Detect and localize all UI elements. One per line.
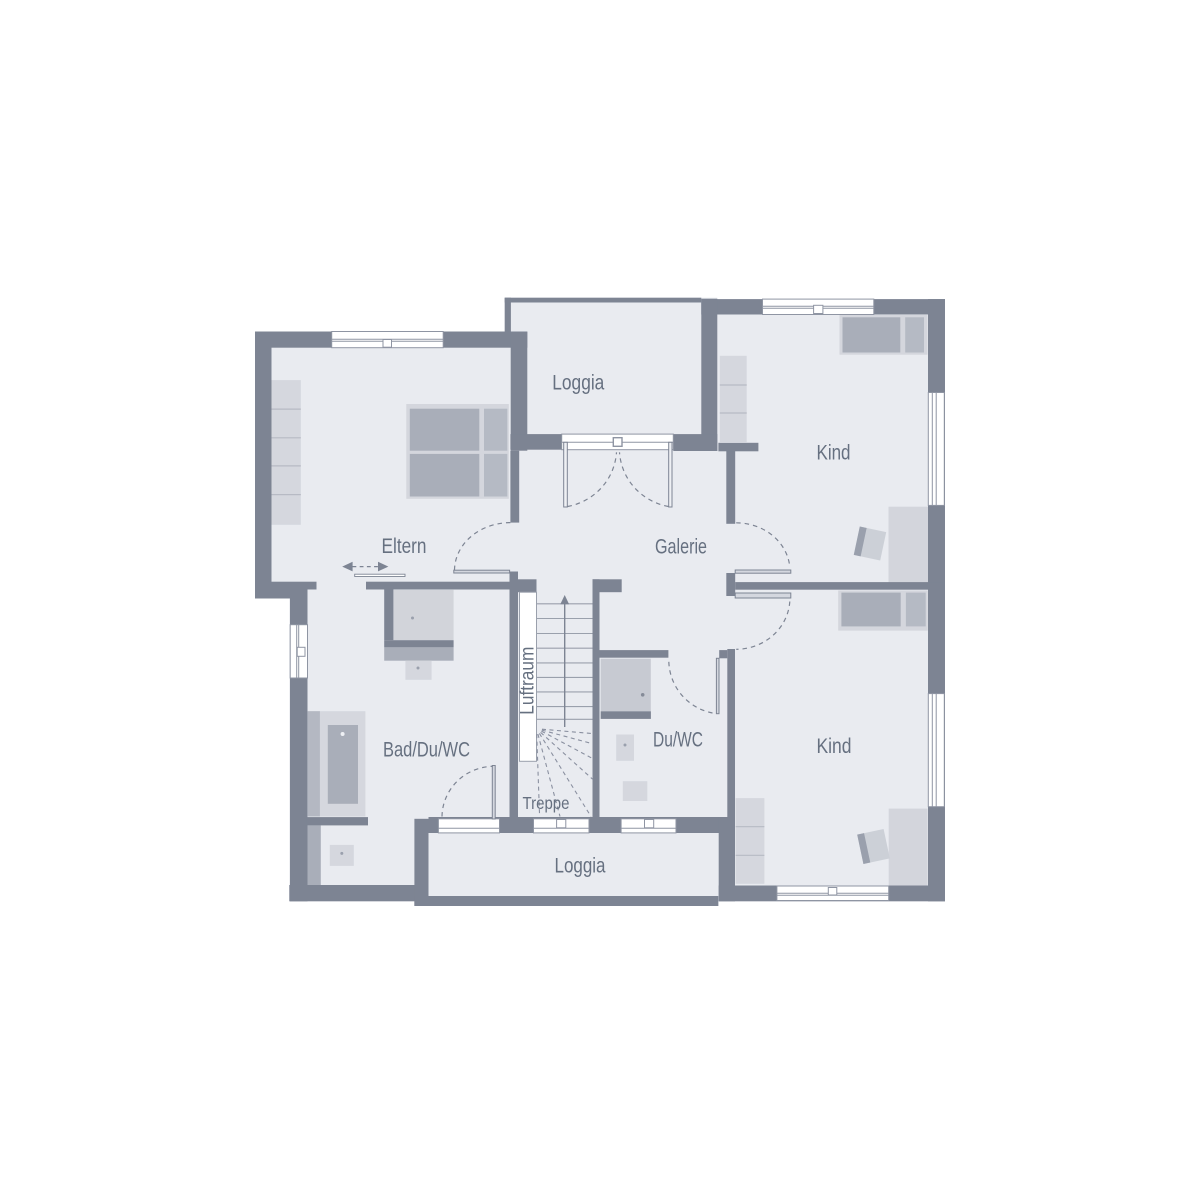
svg-text:Eltern: Eltern — [382, 535, 427, 558]
svg-text:Bad/Du/WC: Bad/Du/WC — [383, 739, 470, 762]
svg-text:Kind: Kind — [817, 735, 852, 758]
svg-text:Loggia: Loggia — [552, 372, 604, 395]
svg-text:Kind: Kind — [817, 441, 851, 464]
svg-text:Treppe: Treppe — [523, 793, 570, 813]
svg-text:Loggia: Loggia — [555, 855, 606, 878]
svg-text:Galerie: Galerie — [655, 536, 707, 559]
svg-text:Du/WC: Du/WC — [653, 729, 703, 752]
svg-text:Luftraum: Luftraum — [518, 647, 539, 715]
